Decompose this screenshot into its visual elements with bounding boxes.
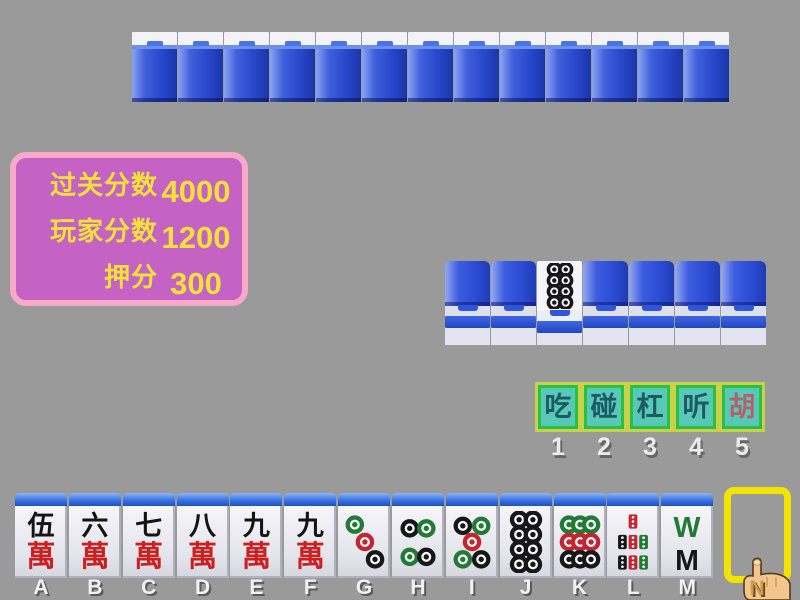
tile-face-art: 七萬 [134, 513, 163, 572]
score-panel: 过关分数 4000 玩家分数 1200 押分 300 [10, 152, 248, 306]
tile-back-edge [230, 493, 282, 506]
opponent-tile-back [546, 32, 591, 102]
action-button-ting[interactable]: 听 [673, 382, 719, 432]
opponent-tile-back [408, 32, 453, 102]
tile-face-art: 九萬 [242, 513, 271, 572]
tile-back-edge [500, 493, 552, 506]
tile-back-notch [561, 41, 577, 46]
hand-slot-letter-n: N [742, 577, 772, 600]
action-button-peng-label: 碰 [587, 388, 621, 426]
hand-tile-l-bamboo7[interactable] [607, 493, 659, 578]
tile-back-notch [688, 305, 708, 311]
tile-back-notch [515, 41, 531, 46]
hand-tile-f-wan9[interactable]: 九萬 [284, 493, 336, 578]
tile-face-art [449, 511, 495, 573]
tile-back-edge [15, 493, 67, 506]
opponent-tile-back [270, 32, 315, 102]
bet-score-value: 300 [158, 269, 234, 299]
action-button-hu[interactable]: 胡 [719, 382, 765, 432]
hand-slot-letter-h: H [392, 576, 444, 600]
player-score-label: 玩家分数 [26, 214, 158, 248]
hand-slot-letter-f: F [284, 576, 336, 600]
hand-slot-letter-i: I [446, 576, 498, 600]
tile-face-art [610, 511, 656, 573]
opponent-tile-back [500, 32, 545, 102]
meld-tile-back [583, 261, 628, 345]
action-button-chi[interactable]: 吃 [535, 382, 581, 432]
hand-slot-letter-c: C [123, 576, 175, 600]
score-row-pass: 过关分数 4000 [26, 168, 234, 214]
game-screen: 过关分数 4000 玩家分数 1200 押分 300 吃 碰 杠 听 胡 1 [0, 0, 800, 600]
opponent-tile-back [592, 32, 637, 102]
hotkey-3: 3 [627, 433, 673, 462]
pass-score-value: 4000 [158, 177, 234, 207]
tile-face-art [557, 511, 603, 573]
hand-tile-i-dots5[interactable] [446, 493, 498, 578]
hand-tile-j-dots8[interactable] [500, 493, 552, 578]
meld-tile-row [445, 261, 767, 345]
tile-back-notch [699, 41, 715, 46]
hand-tile-c-wan7[interactable]: 七萬 [123, 493, 175, 578]
hand-slot-letter-g: G [338, 576, 390, 600]
hotkey-1: 1 [535, 433, 581, 462]
tile-face-art [395, 511, 441, 573]
hand-slot-letter-a: A [15, 576, 67, 600]
tile-back-edge [661, 493, 713, 506]
tile-face-art [341, 511, 387, 573]
opponent-tile-back [454, 32, 499, 102]
action-button-peng[interactable]: 碰 [581, 382, 627, 432]
hand-tile-g-dots3[interactable] [338, 493, 390, 578]
action-hotkey-row: 1 2 3 4 5 [535, 433, 765, 462]
tile-face-art: WM [664, 511, 710, 573]
svg-text:M: M [675, 545, 699, 573]
tile-back-edge [392, 493, 444, 506]
hand-slot-letter-b: B [69, 576, 121, 600]
hand-tile-e-wan9[interactable]: 九萬 [230, 493, 282, 578]
tile-face-art: 伍萬 [26, 513, 55, 572]
tile-back-notch [239, 41, 255, 46]
opponent-tile-back [638, 32, 683, 102]
tile-back-notch [469, 41, 485, 46]
meld-tile-dots8 [537, 261, 582, 345]
hand-slot-letter-m: M [661, 576, 713, 600]
tile-back-notch [550, 310, 570, 316]
action-button-gang-label: 杠 [633, 388, 667, 426]
meld-tile-back [629, 261, 674, 345]
tile-back-edge [554, 493, 606, 506]
tile-back-notch [596, 305, 616, 311]
hand-slot-letter-l: L [607, 576, 659, 600]
tile-back-edge [338, 493, 390, 506]
tile-back-edge [607, 493, 659, 506]
tile-face-art: 八萬 [188, 513, 217, 572]
tile-back-notch [285, 41, 301, 46]
tile-face-art: 六萬 [80, 513, 109, 572]
tile-back-notch [504, 305, 524, 311]
hand-tile-b-wan6[interactable]: 六萬 [69, 493, 121, 578]
hand-slot-letter-d: D [177, 576, 229, 600]
action-button-hu-label: 胡 [725, 388, 759, 426]
opponent-tile-back [316, 32, 361, 102]
score-row-player: 玩家分数 1200 [26, 214, 234, 260]
tile-back-notch [607, 41, 623, 46]
tile-back-notch [331, 41, 347, 46]
hand-slot-letter-e: E [230, 576, 282, 600]
meld-tile-back [675, 261, 720, 345]
opponent-tile-back [178, 32, 223, 102]
tile-back-edge [284, 493, 336, 506]
hand-slot-letters: ABCDEFGHIJKLM [0, 576, 800, 598]
action-button-bar: 吃 碰 杠 听 胡 [535, 382, 765, 432]
hotkey-4: 4 [673, 433, 719, 462]
meld-tile-back [445, 261, 490, 345]
score-row-bet: 押分 300 [26, 260, 234, 306]
tile-face-art: 九萬 [296, 513, 325, 572]
hand-tile-a-wan5[interactable]: 伍萬 [15, 493, 67, 578]
tile-back-notch [734, 305, 754, 311]
tile-back-notch [193, 41, 209, 46]
tile-back-notch [653, 41, 669, 46]
tile-back-edge [446, 493, 498, 506]
action-button-chi-label: 吃 [541, 388, 575, 426]
svg-text:W: W [674, 512, 701, 544]
meld-tile-back [491, 261, 536, 345]
action-button-ting-label: 听 [679, 388, 713, 426]
tile-back-edge [177, 493, 229, 506]
tile-back-notch [458, 305, 478, 311]
opponent-tile-back [684, 32, 729, 102]
opponent-tile-row [132, 32, 730, 102]
tile-face-art [541, 263, 579, 309]
hand-tile-m-bamboo8[interactable]: WM [661, 493, 713, 578]
hotkey-5: 5 [719, 433, 765, 462]
hand-slot-letter-j: J [500, 576, 552, 600]
hand-tile-h-dots4[interactable] [392, 493, 444, 578]
player-hand-row: 伍萬六萬七萬八萬九萬九萬WM [0, 493, 800, 578]
tile-back-edge [123, 493, 175, 506]
tile-back-notch [147, 41, 163, 46]
tile-back-edge [69, 493, 121, 506]
opponent-tile-back [224, 32, 269, 102]
tile-face-art [503, 511, 549, 573]
bet-score-label: 押分 [26, 260, 158, 294]
hand-tile-d-wan8[interactable]: 八萬 [177, 493, 229, 578]
tile-back-notch [377, 41, 393, 46]
hand-tile-k-dots9[interactable] [554, 493, 606, 578]
tile-back-notch [642, 305, 662, 311]
opponent-tile-back [132, 32, 177, 102]
action-button-gang[interactable]: 杠 [627, 382, 673, 432]
pass-score-label: 过关分数 [26, 168, 158, 202]
opponent-tile-back [362, 32, 407, 102]
hotkey-2: 2 [581, 433, 627, 462]
hand-slot-letter-k: K [554, 576, 606, 600]
tile-back-notch [423, 41, 439, 46]
player-score-value: 1200 [158, 223, 234, 253]
meld-tile-back [721, 261, 766, 345]
